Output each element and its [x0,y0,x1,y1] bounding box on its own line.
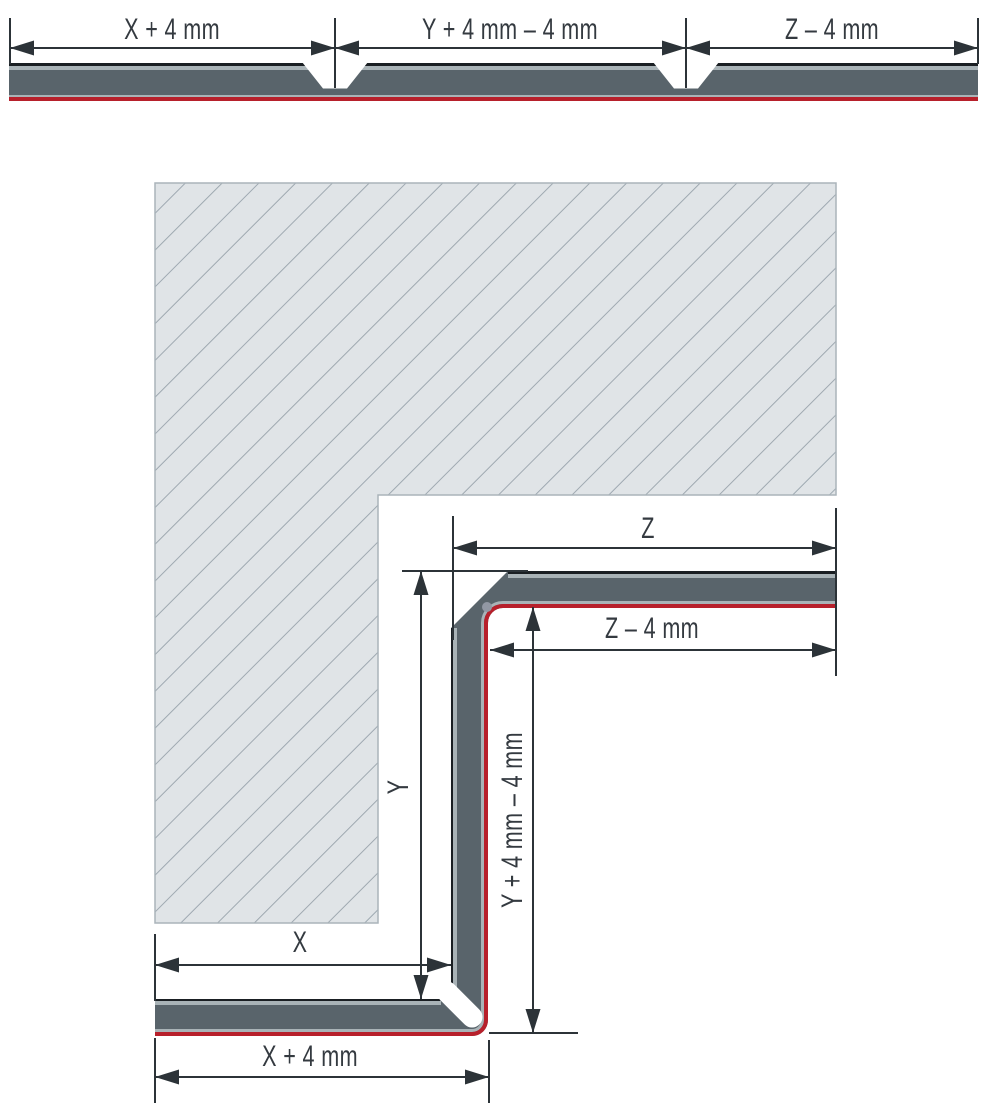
dimension-label-x-plus-4: X + 4 mm [262,1038,358,1072]
folding-technique-diagram: X + 4 mm Y + 4 mm – 4 mm Z – 4 mm [0,0,992,1116]
diagram-canvas: X + 4 mm Y + 4 mm – 4 mm Z – 4 mm [0,0,992,1116]
groove-tip-dot [482,602,492,612]
dimension-label-y-formula: Y + 4 mm – 4 mm [494,732,528,908]
flat-panel-core [9,70,978,95]
flat-panel-liner-top [9,66,978,70]
dimension-label-x-plus-4: X + 4 mm [124,11,220,45]
dimension-label-y-formula: Y + 4 mm – 4 mm [422,11,598,45]
flat-panel-laminate-red [9,97,978,101]
flat-panel-liner-bottom [9,95,978,97]
folded-corner-section: Z Z – 4 mm Y Y + 4 mm – 4 mm X X + 4 mm [155,183,836,1103]
flat-panel-back-edge [9,63,978,66]
dimension-label-z-minus-4: Z – 4 mm [785,11,879,45]
dimension-label-x: X [293,924,308,958]
dimension-label-y: Y [380,780,414,795]
flat-panel-section: X + 4 mm Y + 4 mm – 4 mm Z – 4 mm [9,11,978,101]
dimension-label-z: Z [641,510,655,544]
dimension-label-z-minus-4: Z – 4 mm [605,610,699,644]
